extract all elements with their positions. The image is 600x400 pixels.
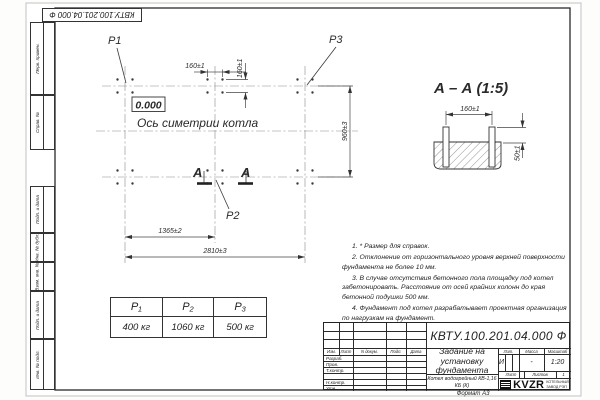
divider bbox=[43, 263, 44, 290]
col-header-izm: Изм. bbox=[324, 348, 339, 355]
title-block: КВТУ.100.201.04.000 Ф Задание на установ… bbox=[323, 322, 570, 390]
dim-1365: 1365±2 bbox=[158, 228, 181, 235]
col-header-data: Дата bbox=[406, 348, 426, 355]
sheets-label: Листов bbox=[524, 371, 556, 378]
section-letter-left: А bbox=[192, 165, 202, 180]
col-header-ndoc: N докум. bbox=[353, 348, 386, 355]
load-table-value-p2: 1060 кг bbox=[163, 317, 215, 337]
top-designation-stamp: КВТУ.100.201.04.000 Ф bbox=[42, 8, 142, 22]
row-label-tcontrol: Т.контр. bbox=[326, 367, 353, 373]
company-logo-area: KVZR КОТЕЛЬНЫЙ ЗАВОД РЭП bbox=[498, 378, 571, 391]
document-title: Задание на установку фундамента bbox=[426, 348, 498, 374]
section-dim-160: 160±1 bbox=[460, 106, 480, 113]
sidebar-label: Справ. № bbox=[35, 112, 40, 133]
divider bbox=[43, 96, 44, 149]
divider bbox=[43, 23, 44, 94]
sidebar-box-podp-data-1: Подп. и дата bbox=[30, 186, 55, 233]
load-table: P₁ P₂ P₃ 400 кг 1060 кг 500 кг bbox=[110, 297, 267, 338]
sidebar-box-perv-primen: Перв. примен. bbox=[30, 22, 55, 95]
dim-960: 960±3 bbox=[342, 121, 349, 141]
load-table-header-p3: P₃ bbox=[214, 298, 266, 317]
divider bbox=[43, 187, 44, 232]
company-subtitle-line2: ЗАВОД РЭП bbox=[546, 385, 567, 389]
sidebar-label: Перв. примен. bbox=[35, 43, 40, 74]
sheet-label: Лист bbox=[498, 371, 524, 378]
section-dim-50: 50±1 bbox=[515, 145, 522, 161]
company-subtitle: КОТЕЛЬНЫЙ ЗАВОД РЭП bbox=[546, 380, 569, 388]
section-view-title: А – А (1:5) bbox=[433, 80, 508, 97]
lit-value: И bbox=[498, 354, 505, 371]
divider bbox=[43, 340, 44, 389]
point-label-p3: P3 bbox=[329, 34, 343, 46]
kvzr-logo-icon bbox=[500, 380, 511, 390]
divider bbox=[43, 292, 44, 338]
col-header-podp: Подп. bbox=[386, 348, 406, 355]
anchor-bolt-right bbox=[489, 127, 495, 167]
col-header-list: Лист bbox=[339, 348, 353, 355]
company-name: KVZR bbox=[513, 379, 544, 391]
sidebar-label: Взам. инв. № bbox=[35, 262, 40, 290]
sidebar-label: Инв. № подл. bbox=[35, 350, 40, 379]
load-table-value-p1: 400 кг bbox=[111, 317, 163, 337]
load-table-header-p2: P₂ bbox=[163, 298, 215, 317]
sidebar-label: Инв. № дубл. bbox=[35, 233, 40, 261]
anchor-bolt-left bbox=[443, 127, 449, 167]
sidebar-label: Подп. и дата bbox=[35, 195, 40, 224]
section-letter-right: А bbox=[240, 165, 250, 180]
sidebar-box-inv-podl: Инв. № подл. bbox=[30, 339, 55, 390]
elevation-value: 0.000 bbox=[135, 100, 161, 112]
note-2: 2. Отклонение от горизонтального уровня … bbox=[342, 253, 574, 273]
drawing-sheet: P1 P3 P2 0.000 Ось симетрии котла 160±1 … bbox=[0, 0, 600, 400]
point-label-p2: P2 bbox=[226, 210, 239, 222]
scale-value: 1:20 bbox=[544, 354, 571, 371]
sidebar-box-sprav-n: Справ. № bbox=[30, 95, 55, 150]
mass-value: - bbox=[519, 354, 544, 371]
format-label: Формат А3 bbox=[428, 391, 518, 397]
point-label-p1: P1 bbox=[108, 35, 121, 47]
product-name: Котел водогрейный КВ-1,16 КБ (К) bbox=[426, 374, 498, 391]
dim-160-top: 160±1 bbox=[185, 63, 205, 70]
divider bbox=[43, 234, 44, 261]
load-table-header-p1: P₁ bbox=[111, 298, 163, 317]
note-1: 1. * Размер для справок. bbox=[342, 242, 574, 252]
sidebar-label: Подп. и дата bbox=[35, 301, 40, 330]
sheets-value: 1 bbox=[556, 371, 571, 378]
designation: КВТУ.100.201.04.000 Ф bbox=[426, 323, 571, 348]
note-3: 3. В случае отсутствия бетонного пола пл… bbox=[342, 274, 574, 304]
sidebar-box-podp-data-2: Подп. и дата bbox=[30, 291, 55, 339]
row-label-approved: Утв. bbox=[326, 385, 353, 391]
technical-notes: 1. * Размер для справок. 2. Отклонение о… bbox=[342, 242, 574, 325]
sidebar-box-inv-dubl: Инв. № дубл. bbox=[30, 233, 55, 262]
dim-160-side: 160±1 bbox=[237, 58, 244, 78]
axis-of-symmetry-label: Ось симетрии котла bbox=[137, 116, 258, 130]
dim-2810: 2810±3 bbox=[202, 248, 226, 255]
note-4: 4. Фундамент под котел разрабатывает про… bbox=[342, 304, 574, 324]
load-table-value-p3: 500 кг bbox=[214, 317, 266, 337]
sidebar-box-vzam-inv: Взам. инв. № bbox=[30, 262, 55, 291]
